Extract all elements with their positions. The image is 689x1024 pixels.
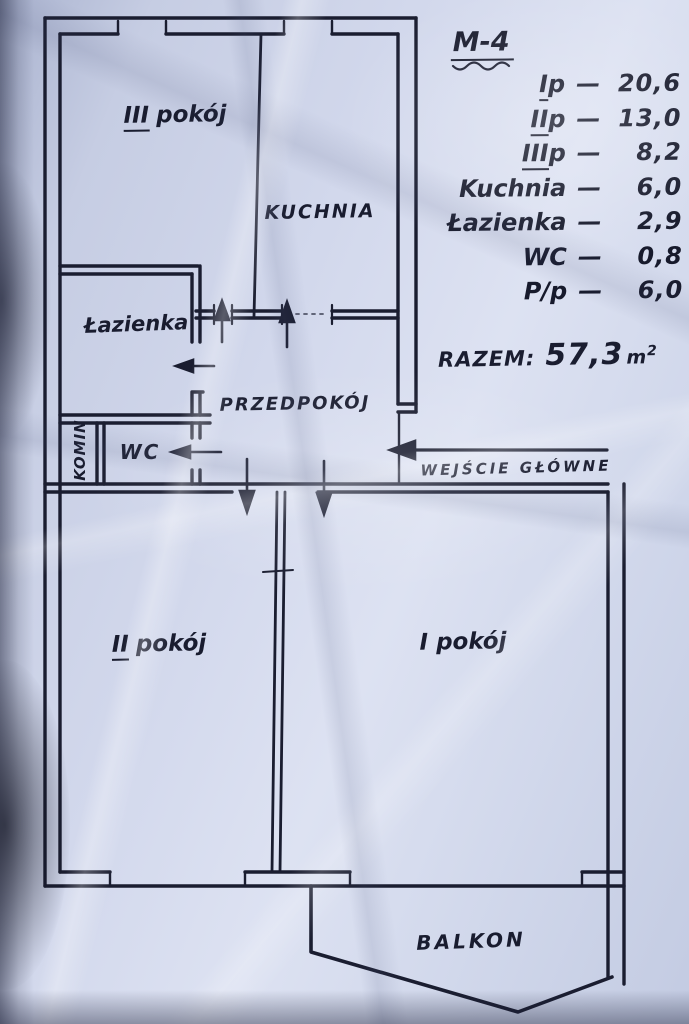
total-label: RAZEM: <box>438 346 536 372</box>
area-row-value: 8,2 <box>612 138 682 167</box>
area-row-value: 2,9 <box>612 207 682 236</box>
area-row-value: 6,0 <box>613 276 683 305</box>
area-row: P/p — 6,0 <box>431 276 683 313</box>
area-row-label: IIp <box>429 104 565 133</box>
total-unit: m <box>626 346 647 368</box>
dash: — <box>565 69 611 97</box>
area-row: Kuchnia — 6,0 <box>430 172 682 209</box>
plan-title: M-4 <box>451 26 514 61</box>
area-row-label: Ip <box>429 70 565 99</box>
room-label-komin: KOMIN <box>71 419 89 480</box>
wall-wc-right <box>192 423 200 484</box>
room-iii-numeral: III <box>123 102 149 131</box>
area-row-value: 6,0 <box>612 172 682 201</box>
room-label-ii-pokoj: IIpokój <box>111 630 206 658</box>
wall-chimney-divider <box>97 423 104 484</box>
window-ticks-top <box>118 21 332 34</box>
total-area: RAZEM:57,3m2 <box>438 336 658 375</box>
total-value: 57,3 <box>545 337 624 373</box>
area-row-value: 0,8 <box>613 241 683 270</box>
dash: — <box>565 104 611 132</box>
area-list: Ip — 20,6 IIp — 13,0 IIIp — 8,2 Kuchnia … <box>429 69 684 313</box>
area-row: IIIp — 8,2 <box>430 138 682 175</box>
room-label-i-pokoj: I pokój <box>419 628 506 656</box>
wall-bathroom-top <box>60 266 198 274</box>
room-label-wc: WC <box>120 440 161 464</box>
wall-bathroom-right <box>192 266 203 415</box>
dash: — <box>566 138 612 166</box>
dash: — <box>567 276 613 304</box>
area-row-label: P/p <box>431 277 567 306</box>
room-ii-numeral: II <box>111 632 129 661</box>
area-row-label: WC <box>431 242 567 271</box>
area-row: WC — 0,8 <box>431 241 683 278</box>
wall-middle <box>45 484 608 492</box>
room-label-iii-pokoj: IIIpokój <box>123 101 227 129</box>
dash: — <box>566 173 612 201</box>
room-label-lazienka: Łazienka <box>83 310 189 338</box>
area-row: Łazienka — 2,9 <box>430 207 682 244</box>
wall-bottom <box>45 872 624 886</box>
area-row-value: 13,0 <box>611 103 681 132</box>
dash: — <box>566 207 612 235</box>
wall-room-divider <box>272 492 285 872</box>
dash: — <box>567 242 613 270</box>
room-label-przedpokoj: PRZEDPOKÓJ <box>220 392 371 416</box>
area-legend: M-4 Ip — 20,6 IIp — 13,0 IIIp — 8,2 Kuch… <box>429 25 684 313</box>
room-label-kuchnia: KUCHNIA <box>264 200 375 224</box>
area-row-label: Kuchnia <box>430 173 566 202</box>
room-label-balkon: BALKON <box>416 927 526 955</box>
wall-upper-right <box>398 18 416 412</box>
wall-kitchen-divider <box>254 34 261 316</box>
area-row-label: Łazienka <box>430 208 566 237</box>
area-row: Ip — 20,6 <box>429 69 681 106</box>
area-row-value: 20,6 <box>611 69 681 98</box>
area-row: IIp — 13,0 <box>429 103 681 140</box>
floor-plan-photo: IIIpokój KUCHNIA Łazienka KOMIN WC PRZED… <box>0 0 689 1024</box>
wall-lower-right <box>608 484 624 984</box>
area-row-label: IIIp <box>430 139 566 168</box>
wall-left <box>45 18 60 886</box>
